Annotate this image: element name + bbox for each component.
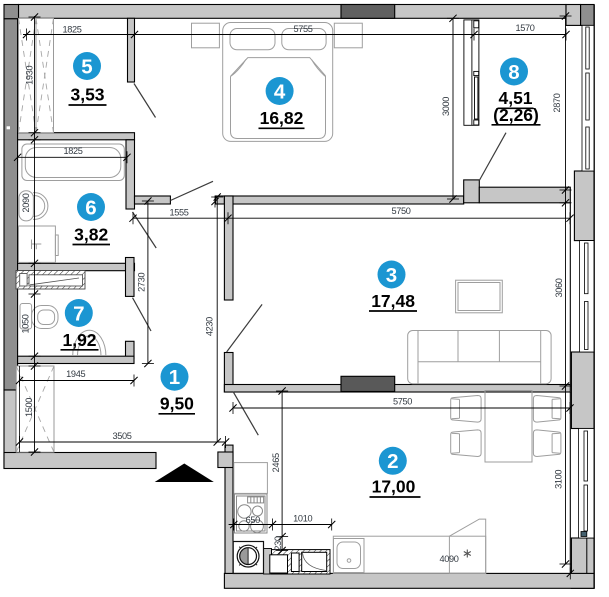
- svg-text:230: 230: [273, 536, 283, 551]
- svg-text:7: 7: [73, 302, 84, 325]
- svg-text:17,00: 17,00: [372, 477, 416, 497]
- svg-text:2: 2: [387, 450, 398, 473]
- svg-text:2090: 2090: [21, 193, 31, 212]
- svg-text:5750: 5750: [391, 206, 410, 216]
- svg-text:1010: 1010: [293, 514, 312, 524]
- svg-text:1050: 1050: [21, 314, 31, 333]
- svg-text:4: 4: [274, 80, 286, 103]
- svg-text:16,82: 16,82: [260, 108, 304, 128]
- svg-text:8: 8: [508, 61, 519, 84]
- svg-text:1500: 1500: [24, 398, 34, 417]
- svg-text:17,48: 17,48: [371, 291, 415, 311]
- svg-text:3,53: 3,53: [70, 85, 104, 105]
- svg-text:1945: 1945: [66, 369, 85, 379]
- svg-text:5755: 5755: [293, 24, 312, 34]
- svg-text:3,82: 3,82: [74, 225, 108, 245]
- svg-text:1930: 1930: [25, 66, 35, 85]
- svg-text:9,50: 9,50: [160, 394, 194, 414]
- svg-text:2465: 2465: [271, 453, 281, 472]
- svg-text:3505: 3505: [112, 431, 131, 441]
- svg-text:3: 3: [386, 264, 397, 287]
- svg-text:4230: 4230: [205, 317, 215, 336]
- svg-text:1825: 1825: [63, 146, 82, 156]
- svg-text:3100: 3100: [553, 470, 563, 489]
- svg-text:1,92: 1,92: [62, 330, 96, 350]
- svg-text:1: 1: [169, 366, 180, 389]
- svg-text:1555: 1555: [169, 208, 188, 218]
- svg-text:1825: 1825: [62, 24, 81, 34]
- svg-text:4090: 4090: [439, 554, 458, 564]
- svg-text:1570: 1570: [515, 23, 534, 33]
- svg-text:6: 6: [85, 196, 96, 219]
- svg-text:5: 5: [81, 55, 92, 78]
- svg-text:650: 650: [246, 515, 261, 525]
- svg-text:2730: 2730: [137, 273, 147, 292]
- svg-text:(2,26): (2,26): [493, 105, 539, 125]
- svg-text:3000: 3000: [441, 97, 451, 116]
- svg-text:3060: 3060: [554, 278, 564, 297]
- svg-text:5750: 5750: [393, 397, 412, 407]
- svg-text:2870: 2870: [552, 93, 562, 112]
